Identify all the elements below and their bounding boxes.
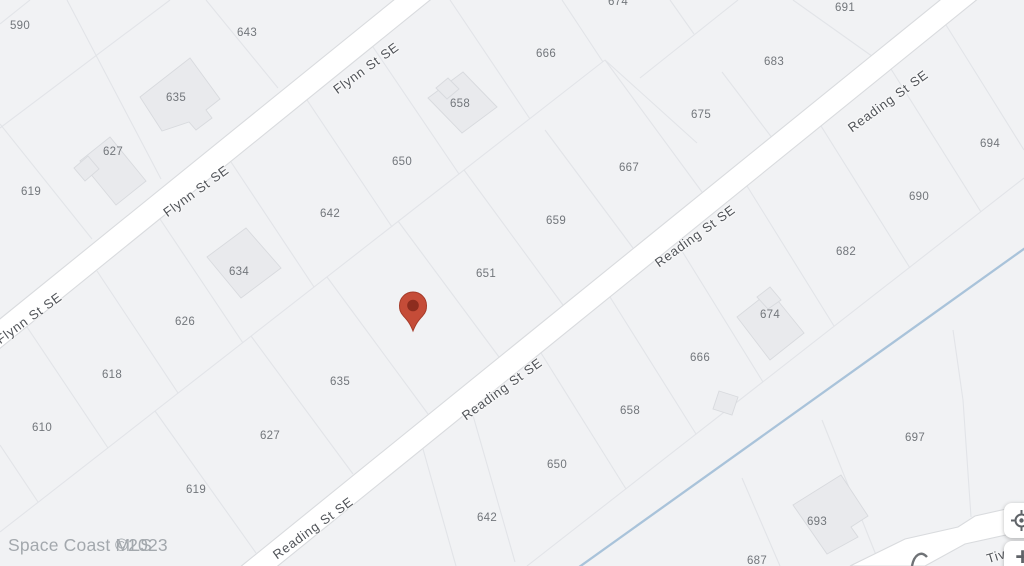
parcel-number-label: 674 — [760, 309, 780, 321]
parcel-number-label: 642 — [477, 512, 497, 524]
parcel-number-label: 694 — [980, 138, 1000, 150]
map-canvas[interactable]: 5906436356276196746666586506426346266186… — [0, 0, 1024, 566]
my-location-icon — [1004, 503, 1024, 538]
parcel-number-label: 693 — [807, 516, 827, 528]
parcel-number-label: 650 — [392, 156, 412, 168]
parcel-number-label: 690 — [909, 191, 929, 203]
parcel-number-label: 667 — [619, 162, 639, 174]
parcel-number-label: 674 — [608, 0, 628, 8]
parcel-number-label: 666 — [690, 352, 710, 364]
parcel-number-label: 626 — [175, 316, 195, 328]
parcel-number-label: 627 — [260, 430, 280, 442]
parcel-number-label: 619 — [21, 186, 41, 198]
property-pin-marker[interactable] — [383, 275, 443, 335]
parcel-number-label: 658 — [450, 98, 470, 110]
parcel-number-label: 666 — [536, 48, 556, 60]
watermark: Space Coast MLS ©2023 — [8, 535, 188, 557]
parcel-number-label: 675 — [691, 109, 711, 121]
parcel-number-label: 643 — [237, 27, 257, 39]
parcel-number-label: 610 — [32, 422, 52, 434]
parcel-number-label: 635 — [166, 92, 186, 104]
parcel-number-label: 590 — [10, 20, 30, 32]
parcel-number-label: 619 — [186, 484, 206, 496]
parcel-number-label: 683 — [764, 56, 784, 68]
parcel-number-label: 642 — [320, 208, 340, 220]
map-base-layer — [0, 0, 1024, 566]
pin-inner-dot — [407, 300, 419, 312]
parcel-number-label: 658 — [620, 405, 640, 417]
parcel-number-label: 687 — [747, 555, 767, 566]
parcel-number-label: 659 — [546, 215, 566, 227]
parcel-number-label: 651 — [476, 268, 496, 280]
parcel-number-label: 697 — [905, 432, 925, 444]
parcel-number-label: 682 — [836, 246, 856, 258]
watermark-year: ©2023 — [115, 535, 168, 556]
parcel-number-label: 691 — [835, 2, 855, 14]
parcel-number-label: 627 — [103, 146, 123, 158]
parcel-number-label: 618 — [102, 369, 122, 381]
plus-icon: + — [1015, 543, 1024, 566]
parcel-number-label: 650 — [547, 459, 567, 471]
my-location-button[interactable] — [1004, 503, 1024, 538]
parcel-number-label: 634 — [229, 266, 249, 278]
parcel-number-label: 635 — [330, 376, 350, 388]
zoom-in-button[interactable]: + — [1004, 541, 1024, 566]
pin-body — [400, 292, 427, 331]
